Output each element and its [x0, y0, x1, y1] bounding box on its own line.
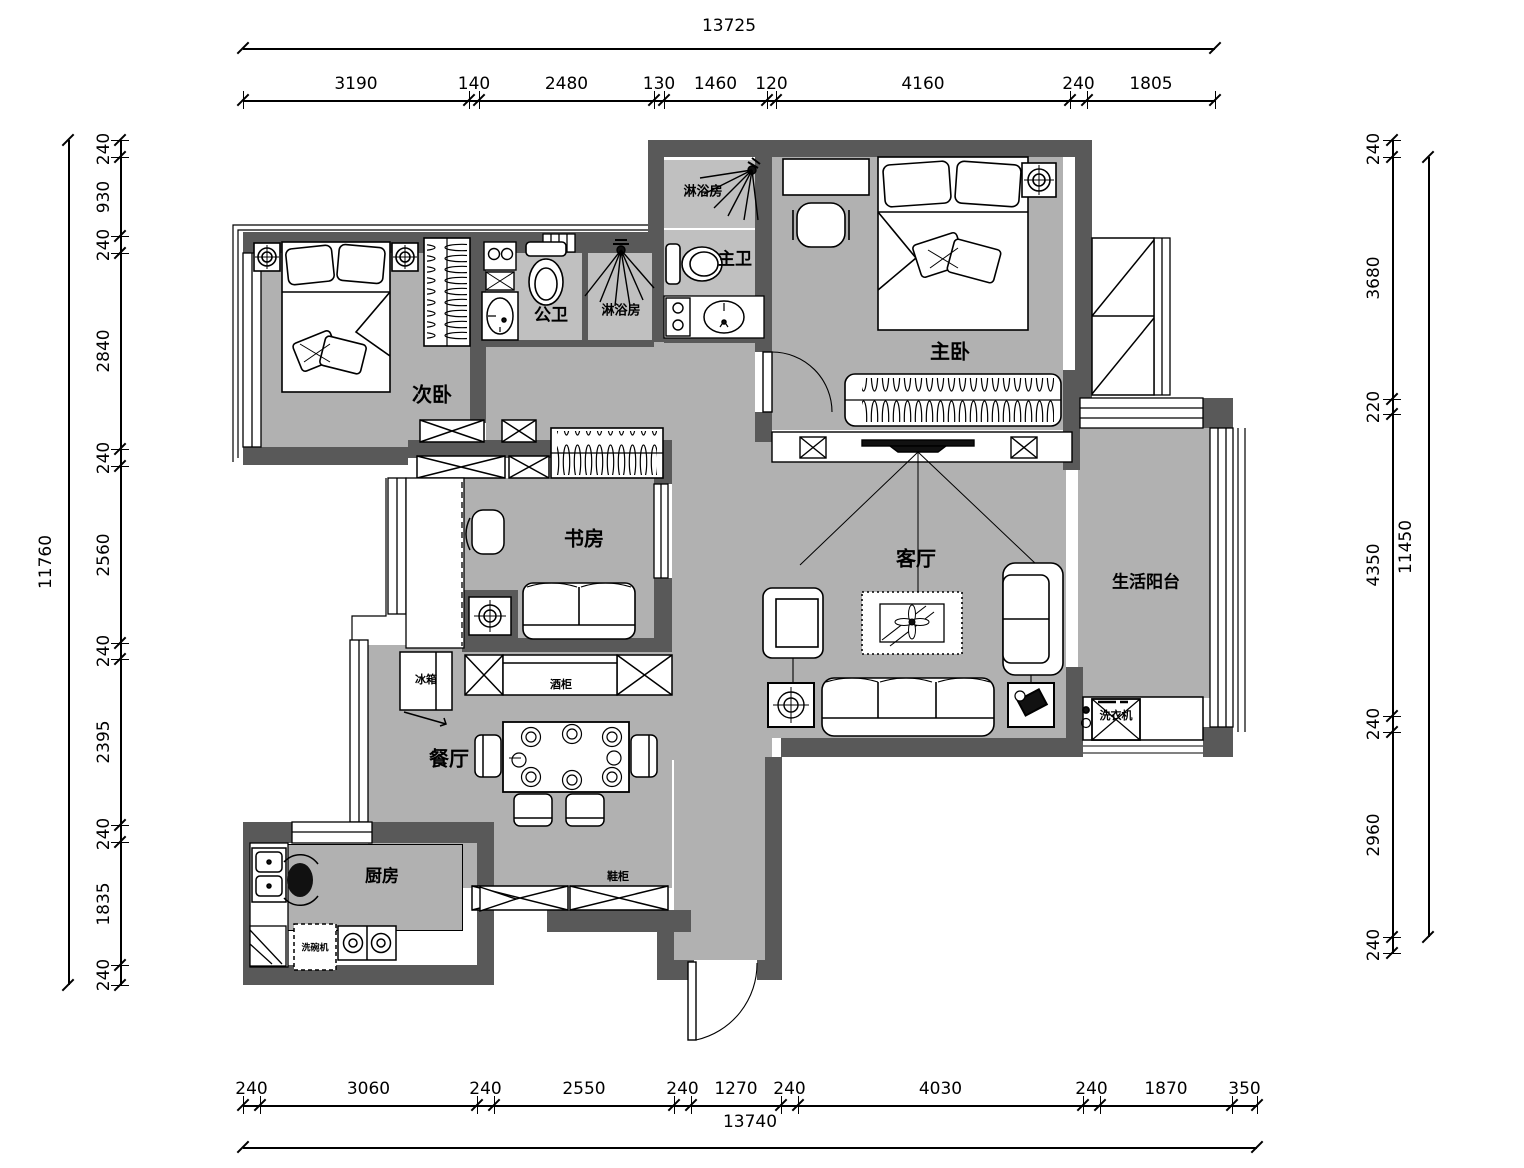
dim-ext-right-5	[1383, 732, 1401, 733]
dim-chain-left	[120, 140, 122, 985]
dim-ext-top-0	[243, 91, 244, 109]
dim-left-9: 1835	[94, 864, 114, 944]
dim-bottom-7: 4030	[901, 1079, 981, 1099]
dim-bottom-6: 240	[750, 1079, 830, 1099]
dim-bottom-3: 2550	[544, 1079, 624, 1099]
dim-top-7: 240	[1039, 74, 1119, 94]
dim-right-4: 240	[1364, 684, 1384, 764]
dimension-layer: 3190140248013014601204160240180513725240…	[0, 0, 1524, 1168]
dim-left-3: 2840	[94, 311, 114, 391]
dim-left-10: 240	[94, 935, 114, 1015]
dim-top-8: 1805	[1111, 74, 1191, 94]
dim-left-6: 240	[94, 611, 114, 691]
dim-chain-bottom	[243, 1105, 1257, 1107]
dim-left-8: 240	[94, 794, 114, 874]
dim-bottom-9: 1870	[1126, 1079, 1206, 1099]
dim-left-5: 2560	[94, 515, 114, 595]
dim-right-6: 240	[1364, 905, 1384, 985]
dim-right-3: 4350	[1364, 525, 1384, 605]
dim-ext-top-9	[1215, 91, 1216, 109]
dim-right-5: 2960	[1364, 795, 1384, 875]
dim-left-4: 240	[94, 418, 114, 498]
dim-total-top: 13725	[689, 16, 769, 36]
dim-ext-right-3	[1383, 414, 1401, 415]
dim-total-line-top	[243, 48, 1215, 50]
dim-bottom-10: 350	[1205, 1079, 1285, 1099]
dim-bottom-8: 240	[1052, 1079, 1132, 1099]
dim-ext-right-0	[1383, 140, 1401, 141]
dim-ext-right-4	[1383, 716, 1401, 717]
floor-plan-canvas: 次卧 公卫 淋浴房 淋浴房 主卫 主卧 书房 客厅 生活阳台 餐厅 厨房 冰箱 …	[0, 0, 1524, 1168]
dim-total-right: 11450	[1396, 507, 1416, 587]
dim-top-2: 2480	[527, 74, 607, 94]
dim-right-1: 3680	[1364, 238, 1384, 318]
dim-total-bottom: 13740	[710, 1112, 790, 1132]
dim-ext-right-6	[1383, 937, 1401, 938]
dim-ext-right-7	[1383, 953, 1401, 954]
dim-top-1: 140	[434, 74, 514, 94]
dim-top-5: 120	[732, 74, 812, 94]
dim-right-0: 240	[1364, 109, 1384, 189]
dim-ext-right-1	[1383, 157, 1401, 158]
dim-total-line-right	[1428, 157, 1430, 937]
dim-right-2: 220	[1364, 367, 1384, 447]
dim-top-6: 4160	[883, 74, 963, 94]
dim-total-left: 11760	[36, 522, 56, 602]
dim-bottom-2: 240	[446, 1079, 526, 1099]
dim-bottom-1: 3060	[329, 1079, 409, 1099]
dim-total-line-bottom	[243, 1147, 1257, 1149]
dim-bottom-0: 240	[212, 1079, 292, 1099]
dim-top-0: 3190	[316, 74, 396, 94]
dim-left-7: 2395	[94, 702, 114, 782]
dim-left-2: 240	[94, 205, 114, 285]
dim-ext-right-2	[1383, 399, 1401, 400]
dim-total-line-left	[68, 140, 70, 985]
dim-chain-right	[1392, 140, 1394, 953]
